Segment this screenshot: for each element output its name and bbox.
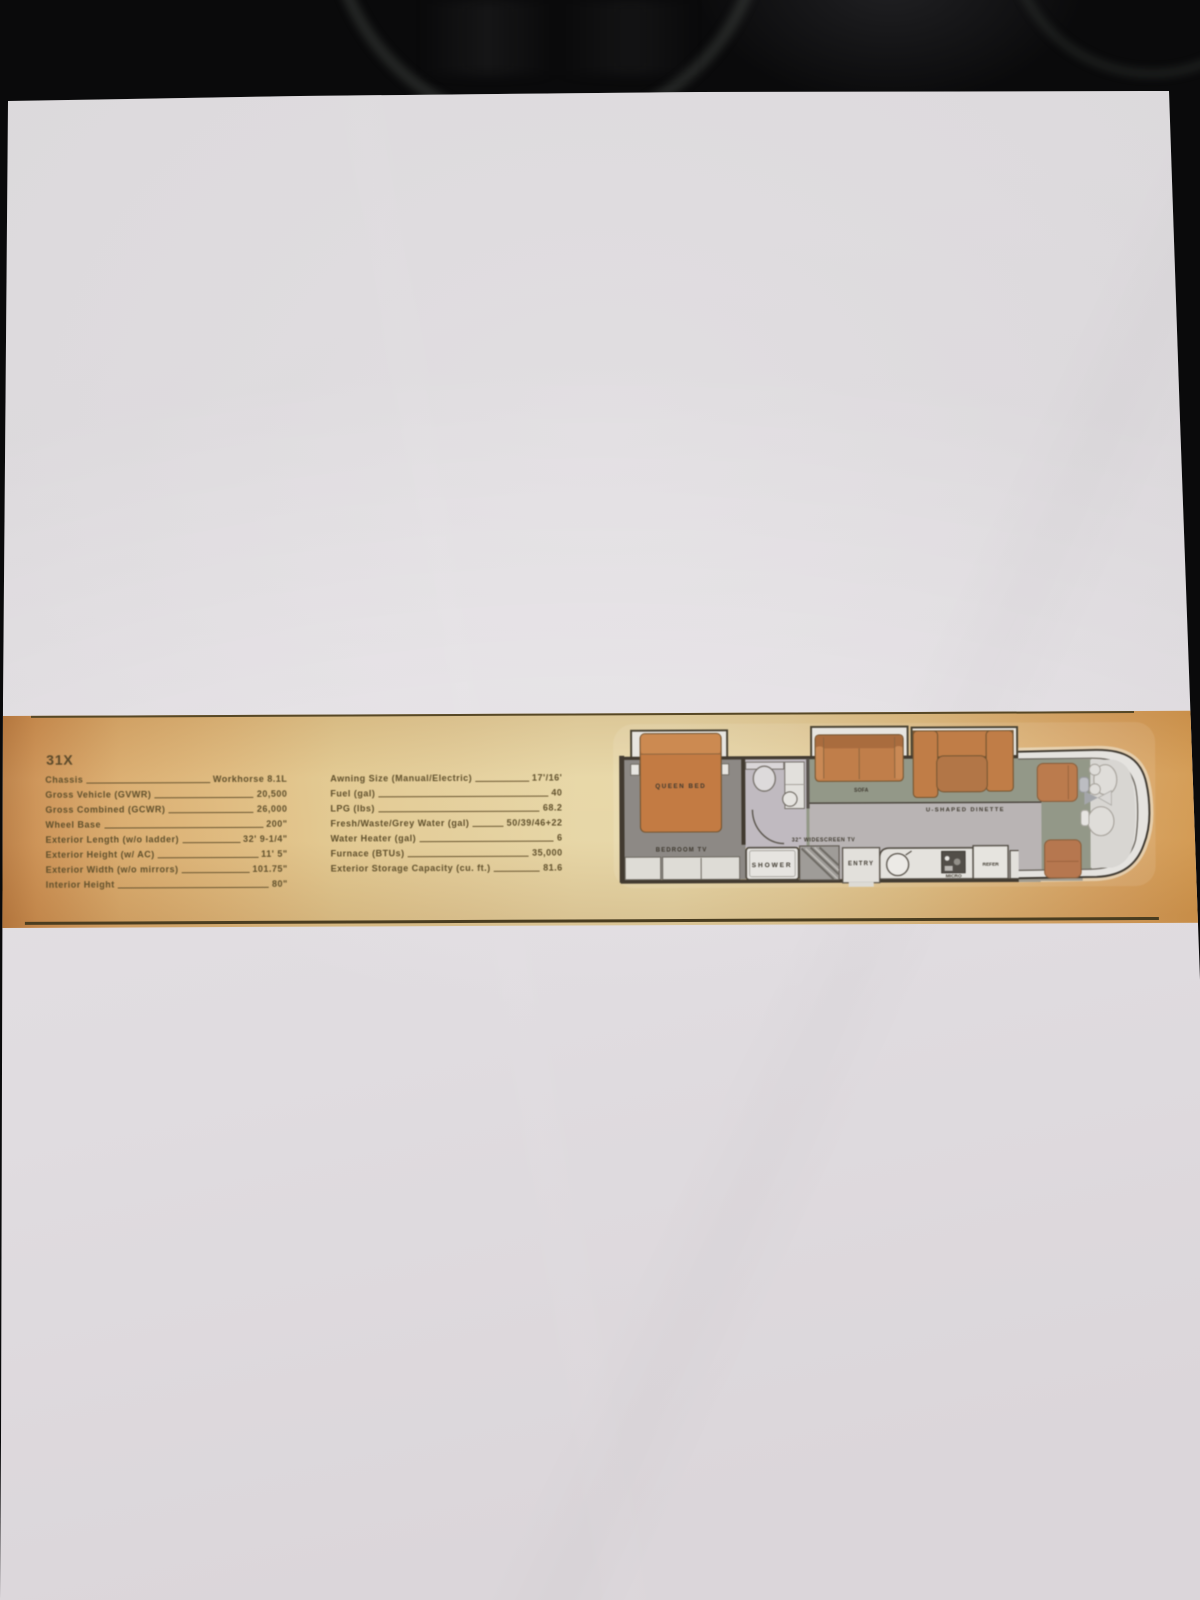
svg-text:ENTRY: ENTRY bbox=[848, 861, 874, 867]
svg-text:QUEEN BED: QUEEN BED bbox=[655, 783, 706, 790]
svg-text:SOFA: SOFA bbox=[854, 788, 869, 794]
svg-text:BEDROOM TV: BEDROOM TV bbox=[656, 847, 708, 853]
svg-text:SHOWER: SHOWER bbox=[752, 862, 793, 869]
svg-text:MICRO: MICRO bbox=[946, 873, 962, 879]
svg-text:U-SHAPED DINETTE: U-SHAPED DINETTE bbox=[926, 807, 1005, 813]
svg-text:32" WIDESCREEN TV: 32" WIDESCREEN TV bbox=[792, 837, 855, 843]
svg-text:REFER: REFER bbox=[983, 861, 1000, 867]
